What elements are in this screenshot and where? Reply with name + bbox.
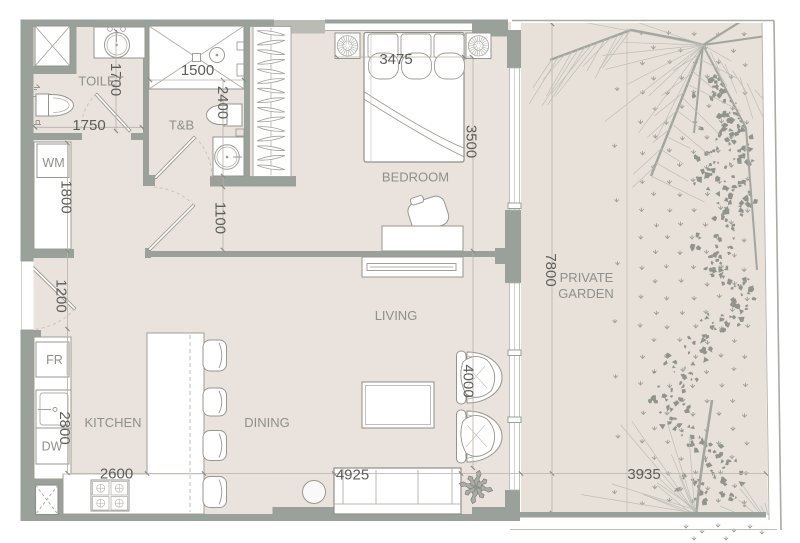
svg-text:3935: 3935 — [627, 466, 660, 483]
svg-text:LIVING: LIVING — [375, 308, 418, 323]
svg-text:1750: 1750 — [72, 117, 105, 134]
svg-text:2400: 2400 — [214, 86, 231, 119]
svg-text:T&B: T&B — [169, 118, 194, 133]
svg-text:WM: WM — [42, 156, 64, 170]
svg-text:DW: DW — [42, 440, 63, 454]
svg-text:PRIVATE: PRIVATE — [560, 270, 614, 285]
svg-text:1500: 1500 — [181, 62, 214, 79]
svg-text:TOILET: TOILET — [78, 74, 123, 89]
svg-text:1100: 1100 — [212, 202, 229, 234]
svg-text:7800: 7800 — [542, 253, 559, 286]
svg-text:DINING: DINING — [244, 415, 290, 430]
svg-text:KITCHEN: KITCHEN — [84, 415, 141, 430]
svg-text:4925: 4925 — [336, 467, 369, 484]
svg-text:FR: FR — [46, 353, 63, 367]
svg-text:4000: 4000 — [460, 364, 477, 397]
svg-text:3475: 3475 — [379, 51, 412, 68]
svg-text:2600: 2600 — [100, 465, 133, 482]
svg-text:1200: 1200 — [53, 279, 70, 312]
svg-text:GARDEN: GARDEN — [558, 286, 614, 301]
svg-text:3500: 3500 — [463, 125, 480, 158]
svg-text:BEDROOM: BEDROOM — [382, 170, 449, 185]
svg-text:1800: 1800 — [58, 180, 75, 213]
